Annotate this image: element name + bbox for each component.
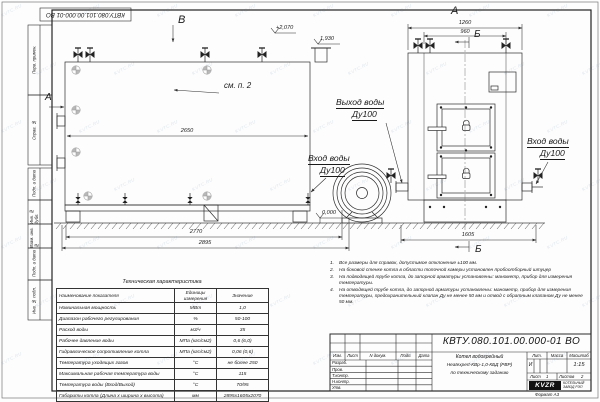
leader-lines: [49, 25, 548, 252]
table-row: Гидравлическое сопротивление котлаМПа (к…: [57, 347, 269, 358]
col-header-name: Наименование показателя: [57, 289, 175, 303]
margin-label-inv-podl: Инв. № подл.: [28, 280, 40, 320]
tb-sheets-no: 2: [581, 375, 583, 379]
elevation-plus-2070: +2,070: [276, 26, 293, 32]
row-unit: м3/ч: [175, 325, 217, 336]
row-unit: МПа (кгс/см2): [175, 347, 217, 358]
margin-label-inv-dubl: Инв. № дубл.: [28, 200, 40, 224]
dim-2650: 2650: [181, 129, 193, 135]
tb-name-line1: Котел водогрейный: [432, 355, 527, 360]
margin-label-sprav-no: Справ. №: [28, 95, 40, 165]
tb-row-razrab: Разраб.: [332, 361, 347, 365]
tb-row-utv: Утв.: [332, 386, 342, 390]
row-unit: °С: [175, 358, 217, 369]
tb-col-data: Дата: [416, 354, 432, 358]
row-unit: МПа (кгс/см2): [175, 336, 217, 347]
note-item: 1.Все размеры для справок, допустимое от…: [330, 261, 588, 267]
section-label-b-bottom: Б: [475, 245, 482, 255]
kvzr-logo: KVZR: [529, 381, 561, 390]
notes-list: 1.Все размеры для справок, допустимое от…: [330, 261, 588, 307]
row-value: 70/95: [217, 380, 269, 391]
view-label-b: В: [178, 15, 185, 26]
inlet-water-left-dn: Ду100: [320, 166, 345, 177]
table-row: Расход водым3/ч35: [57, 325, 269, 336]
row-value: не более 250: [217, 358, 269, 369]
table-row: Максимальная рабочая температура воды°С1…: [57, 369, 269, 380]
table-header-row: Наименование показателя Единицы измерени…: [57, 289, 269, 303]
note-number: 4.: [330, 288, 339, 306]
margin-label-podp-data-2: Подп. и дата: [28, 248, 40, 280]
row-name: Гидравлическое сопротивление котла: [57, 347, 175, 358]
ground-hatching: [54, 223, 545, 229]
row-unit: °С: [175, 369, 217, 380]
note-number: 1.: [330, 261, 339, 267]
tech-table-title: Техническая характеристика: [56, 279, 268, 285]
dim-1260: 1260: [459, 21, 471, 27]
tb-sheets-label: Листов: [559, 375, 574, 379]
tb-lit-label: Лит.: [527, 354, 547, 358]
row-name: Рабочее давление воды: [57, 336, 175, 347]
tb-col-list: Лист: [345, 354, 360, 358]
margin-label-perv-primen: Перв. примен.: [28, 25, 40, 95]
boiler-front-view: [387, 39, 544, 230]
doc-number-stamp-rotated: КВТУ.080.101.00.000-01 ВО: [40, 8, 131, 21]
row-name: Температура воды (Вход/Выход): [57, 380, 175, 391]
title-block-doc-number: КВТУ.080.101.00.000-01 ВО: [432, 337, 591, 347]
tb-col-podp: Подп.: [396, 354, 416, 358]
tb-mass-label: Масса: [547, 354, 567, 358]
note-text: На боковой стенке котла в области топочн…: [339, 268, 551, 274]
note-text: На отводящей трубе котла, до запорной ар…: [339, 288, 588, 306]
tb-sheet-no: 1: [546, 375, 548, 379]
outlet-water-label: Выход воды: [336, 98, 384, 109]
row-value: 1,0: [217, 303, 269, 314]
elevation-1930: 1,930: [320, 37, 334, 43]
note-text: Все размеры для справок, допустимое откл…: [339, 261, 477, 267]
tb-sheet-label: Лист: [530, 375, 541, 379]
boiler-side-view: [57, 48, 331, 222]
note-item: 4.На отводящей трубе котла, до запорной …: [330, 288, 588, 306]
note-text: На подводящей трубе котла, до запорной а…: [339, 275, 588, 287]
note-item: 3.На подводящей трубе котла, до запорной…: [330, 275, 588, 287]
col-header-value: Значение: [217, 289, 269, 303]
dim-1605: 1605: [462, 233, 474, 239]
tb-scale-value: 1:15: [567, 363, 591, 369]
section-label-b-top: Б: [474, 30, 481, 40]
dim-2770: 2770: [190, 230, 202, 236]
row-unit: МВт: [175, 303, 217, 314]
row-value: 0,6 (6,0): [217, 336, 269, 347]
table-row: Номинальная мощностьМВт1,0: [57, 303, 269, 314]
inlet-water-right-dn: Ду100: [540, 149, 565, 160]
row-value: 50-100: [217, 314, 269, 325]
margin-label-podp-data-1: Подп. и дата: [28, 168, 40, 200]
tb-col-izm: Изм.: [330, 354, 345, 358]
tb-scale-label: Масштаб: [567, 354, 591, 358]
row-unit: °С: [175, 380, 217, 391]
row-value: 0,06 (0,6): [217, 347, 269, 358]
row-value: 35: [217, 325, 269, 336]
row-name: Температура уходящих газов: [57, 358, 175, 369]
elevation-marks: [271, 28, 342, 223]
row-name: Диапазон рабочего регулирования: [57, 314, 175, 325]
note-number: 2.: [330, 268, 339, 274]
view-arrow-label-a: А: [45, 93, 52, 103]
logo-sub-line2: ЗАВОД РЭП: [563, 386, 582, 389]
inlet-water-right-label: Вход воды: [527, 137, 569, 148]
tech-characteristics-table: Наименование показателя Единицы измерени…: [56, 288, 269, 402]
margin-label-vzam-inv: Взам. инв. №: [28, 224, 40, 248]
tb-row-tkontr: Т.контр.: [332, 374, 349, 378]
table-row: Диапазон рабочего регулирования%50-100: [57, 314, 269, 325]
table-row: Температура уходящих газов°Сне более 250: [57, 358, 269, 369]
row-name: Максимальная рабочая температура воды: [57, 369, 175, 380]
row-value: 115: [217, 369, 269, 380]
row-unit: %: [175, 314, 217, 325]
callout-see-note-2: см. п. 2: [224, 82, 251, 90]
tb-name-line3: по техническому заданию: [432, 371, 527, 376]
tb-row-prov: Пров.: [332, 368, 343, 372]
row-name: Расход воды: [57, 325, 175, 336]
elevation-0000: 0,000: [322, 211, 336, 217]
note-number: 3.: [330, 275, 339, 287]
dim-2895: 2895: [199, 241, 211, 247]
drawing-sheet: { "doc_number": "КВТУ.080.101.00.000-01 …: [0, 0, 600, 400]
table-row: Рабочее давление водыМПа (кгс/см2)0,6 (6…: [57, 336, 269, 347]
format-label: Формат А3: [535, 393, 559, 397]
tb-col-dokum: N докум.: [360, 354, 396, 358]
table-row: Температура воды (Вход/Выход)°С70/95: [57, 380, 269, 391]
view-label-a-front: А: [451, 6, 458, 17]
note-item: 2.На боковой стенке котла в области топо…: [330, 268, 588, 274]
row-name: Номинальная мощность: [57, 303, 175, 314]
inlet-water-left-label: Вход воды: [308, 154, 350, 165]
tb-row-nkontr: Н.контр.: [332, 380, 350, 384]
tb-name-line2: Heatexpert-КВр-1,0-КБД (РВР): [432, 363, 527, 368]
dim-960: 960: [460, 30, 469, 36]
outlet-water-dn: Ду100: [352, 110, 377, 121]
col-header-units: Единицы измерения: [175, 289, 217, 303]
tb-lit-value: И: [527, 363, 534, 368]
